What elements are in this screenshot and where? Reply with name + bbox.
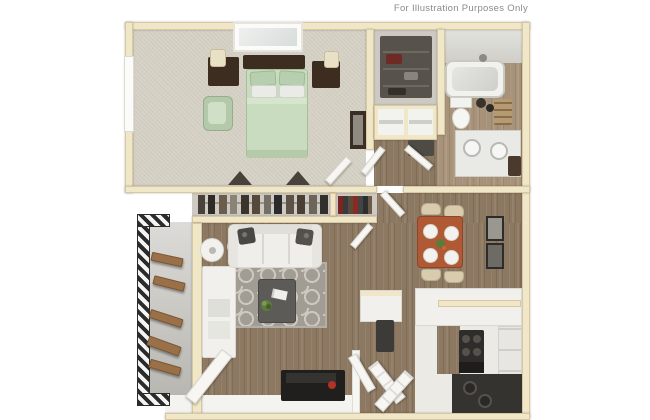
lamp-left: [210, 49, 226, 67]
shower-head: [479, 54, 487, 62]
burner: [473, 348, 481, 356]
bath-bin-2: [486, 104, 494, 112]
hanging-clothes: [198, 195, 328, 214]
burner: [462, 335, 470, 343]
shelf-line: [383, 51, 429, 53]
closet-bifold-right: [286, 171, 310, 185]
wall-mid-right: [403, 186, 530, 193]
wall-mid-left: [125, 186, 377, 193]
decor-red: [328, 381, 336, 389]
sofa-pillow-left: [237, 227, 256, 245]
wall-right: [522, 22, 530, 418]
stored-item-red: [386, 54, 402, 64]
plate-3: [423, 248, 438, 263]
art-canvas: [488, 245, 502, 267]
dining-chair-bottom-left: [421, 269, 441, 281]
counter-cap: [361, 291, 401, 296]
dining-chair-top-left: [421, 203, 441, 215]
stair-hatch-bottom: [137, 393, 170, 406]
towel-shelf: [494, 99, 512, 125]
bedroom-window-top: [233, 22, 303, 52]
disclaimer-text: For Illustration Purposes Only: [0, 3, 528, 14]
wall-closet-divider: [330, 193, 336, 216]
fireplace-unit: [202, 266, 236, 358]
bedroom-window-left: [124, 56, 134, 132]
art-canvas: [353, 115, 363, 145]
stove: [459, 330, 484, 373]
linen-shelf-right: [409, 120, 432, 124]
toilet-tank: [450, 97, 472, 108]
wall-closet-bottom: [192, 216, 377, 223]
burner: [473, 335, 481, 343]
bed-fold: [247, 98, 307, 104]
pillow-white-left: [251, 85, 277, 98]
wall-bottom: [165, 413, 530, 420]
bath-bin-1: [476, 98, 486, 108]
coffee-table-plant: [261, 300, 272, 311]
stair-hatch-left: [137, 214, 150, 406]
storage-shelving: [380, 36, 432, 98]
wall-bathroom-left: [437, 29, 445, 135]
fireplace-niche: [208, 321, 230, 339]
window-pane: [239, 28, 297, 46]
oven-front: [459, 362, 484, 373]
sink-left: [463, 139, 481, 157]
wall-art-bedroom: [350, 111, 366, 149]
lamp-right: [324, 51, 339, 68]
plate-2: [444, 226, 459, 241]
floorplan-illustration: For Illustration Purposes Only: [0, 0, 650, 420]
sink-basin-2: [478, 394, 492, 408]
linen-shelf-left: [379, 120, 403, 124]
bathtub: [445, 60, 505, 98]
art-canvas: [488, 218, 502, 239]
kitchen-wood-strip: [437, 326, 460, 374]
shelf-line: [383, 85, 429, 87]
stored-item-gray: [404, 72, 418, 80]
burner: [462, 348, 470, 356]
lamp-finial: [209, 247, 216, 254]
vanity-towel: [508, 156, 521, 176]
sofa-pillow-right: [295, 228, 314, 246]
cushion-divider: [288, 234, 290, 264]
kitchen-peninsula: [415, 288, 522, 326]
kitchen-counter-left: [360, 290, 402, 322]
plate-4: [444, 250, 459, 265]
bed-foot: [247, 150, 307, 158]
closet-bifold-left: [228, 171, 252, 185]
fireplace-niche: [208, 299, 230, 317]
cushion-divider: [262, 234, 264, 264]
stair-hatch-top: [137, 214, 170, 227]
sink-right: [490, 142, 508, 160]
floor-lamp: [200, 238, 224, 262]
chair-throw: [208, 102, 226, 124]
shelf-line: [383, 68, 429, 70]
tub-basin: [452, 67, 498, 91]
pillow-white-right: [279, 85, 305, 98]
kitchen-appliance: [376, 320, 394, 352]
kitchen-counter-dark: [452, 374, 522, 413]
wall-bedroom-hall: [366, 29, 374, 150]
accent-chair: [203, 96, 233, 131]
plate-1: [423, 224, 438, 239]
wall-top: [125, 22, 530, 30]
sink-basin-1: [463, 381, 477, 395]
peninsula-cap: [438, 300, 521, 307]
stored-item-dark: [388, 88, 406, 95]
centerpiece-accent: [442, 246, 446, 250]
wall-art-dining-2: [486, 243, 504, 269]
dining-chair-bottom-right: [444, 271, 464, 283]
wall-art-dining-1: [486, 216, 504, 241]
headboard: [243, 55, 305, 69]
bookshelf-books: [338, 196, 372, 214]
